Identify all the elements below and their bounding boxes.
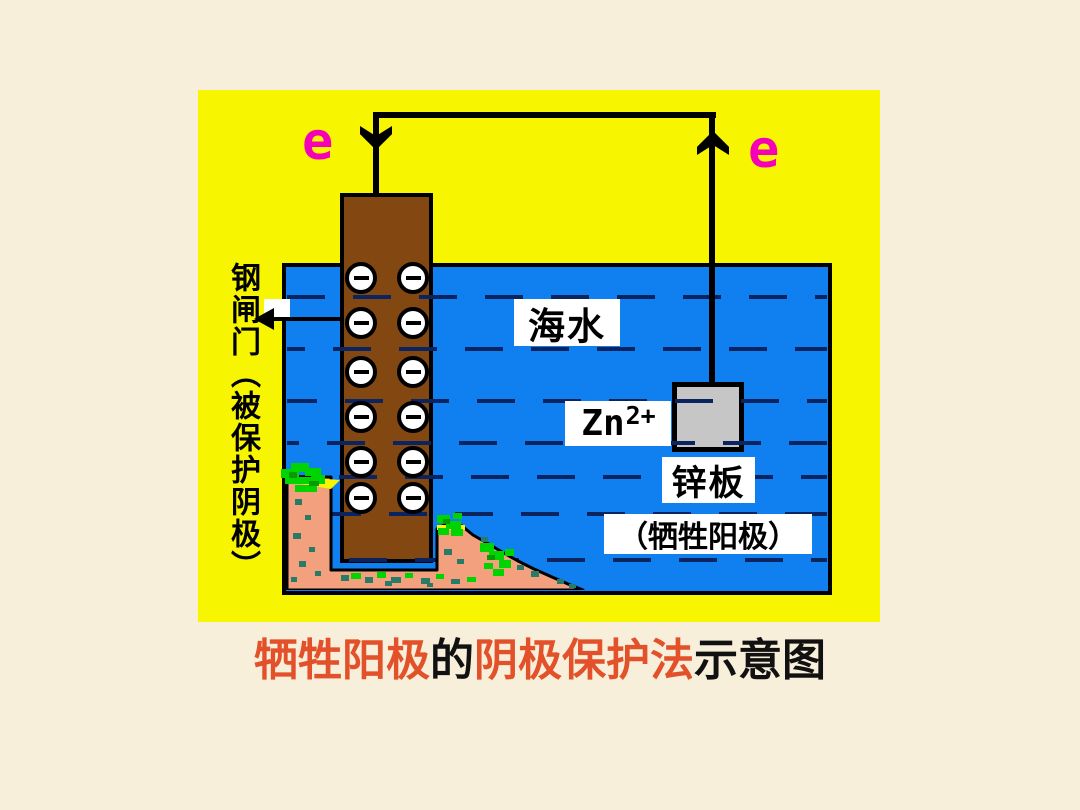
slide-background: 海水 Zn2+ 锌板 （牺牲阳极） e e 钢闸门（被保护阴极） 牺牲阳极的阴极… — [0, 0, 1080, 810]
electron-icon — [345, 446, 377, 478]
electron-icon — [397, 262, 429, 294]
sacrificial-anode-label: （牺牲阳极） — [604, 514, 812, 554]
zinc-ion-label: Zn2+ — [565, 401, 671, 446]
zinc-ion-base: Zn — [581, 403, 624, 444]
electron-label-right: e — [748, 124, 779, 176]
minus-sign-icon — [406, 370, 421, 374]
sacrificial-anode-label-text: （牺牲阳极） — [618, 512, 798, 556]
electron-label-left: e — [302, 116, 333, 168]
minus-sign-icon — [406, 415, 421, 419]
wave-dash-line — [287, 441, 827, 445]
electron-icon — [345, 482, 377, 514]
electron-icon — [345, 307, 377, 339]
electron-icon — [397, 446, 429, 478]
steel-gate-label: 钢闸门（被保护阴极） — [209, 262, 271, 612]
minus-sign-icon — [354, 321, 369, 325]
seawater-label: 海水 — [514, 299, 620, 346]
zinc-plate-label-text: 锌板 — [671, 455, 745, 506]
minus-sign-icon — [354, 370, 369, 374]
minus-sign-icon — [406, 496, 421, 500]
wire-left-vertical — [373, 112, 379, 193]
minus-sign-icon — [354, 415, 369, 419]
minus-sign-icon — [406, 321, 421, 325]
electron-icon — [397, 307, 429, 339]
electron-icon — [345, 401, 377, 433]
minus-sign-icon — [406, 460, 421, 464]
electron-icon — [397, 482, 429, 514]
seawater-label-text: 海水 — [528, 296, 606, 350]
wire-horizontal — [373, 112, 716, 118]
gate-pointer-line — [270, 317, 340, 321]
electron-icon — [397, 356, 429, 388]
caption-seg-3: 阴极保护法 — [474, 636, 694, 685]
caption: 牺牲阳极的阴极保护法示意图 — [198, 632, 882, 690]
minus-sign-icon — [406, 276, 421, 280]
minus-sign-icon — [354, 460, 369, 464]
minus-sign-icon — [354, 276, 369, 280]
seabed — [281, 459, 612, 590]
electron-icon — [345, 356, 377, 388]
wire-right-vertical — [709, 112, 715, 385]
caption-seg-2: 的 — [430, 636, 474, 685]
caption-seg-4: 示意图 — [694, 636, 826, 685]
electron-icon — [397, 401, 429, 433]
caption-seg-1: 牺牲阳极 — [254, 636, 430, 685]
zinc-plate-label: 锌板 — [662, 457, 755, 503]
electron-icon — [345, 262, 377, 294]
minus-sign-icon — [354, 496, 369, 500]
